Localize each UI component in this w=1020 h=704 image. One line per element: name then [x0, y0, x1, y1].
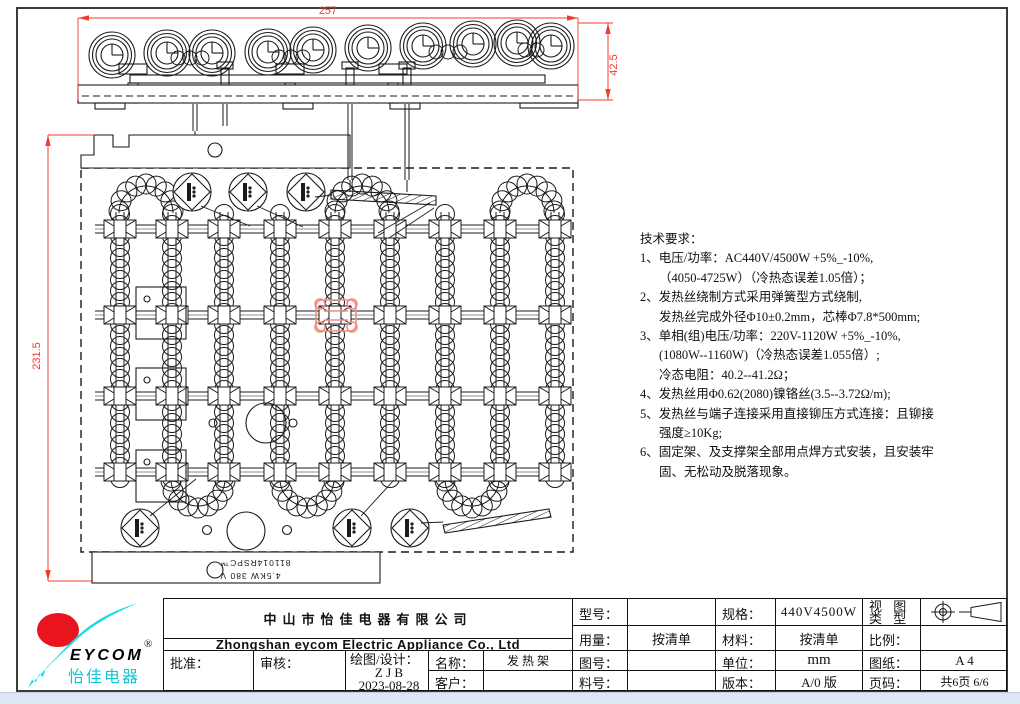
material-label: 材料：	[716, 626, 776, 651]
tech-note-line: 固、无松动及脱落现象。	[640, 463, 1018, 482]
tech-note-line: 6、固定架、及支撑架全部用点焊方式安装，且安装牢	[640, 443, 1018, 462]
drawing-no-value	[628, 651, 716, 671]
svg-text:42.5: 42.5	[608, 54, 620, 75]
tech-note-line: 5、发热丝与端子连接采用直接铆压方式连接：且铆接	[640, 405, 1018, 424]
tech-note-line: 冷态电阻：40.2--41.2Ω；	[640, 366, 1018, 385]
view-type-label: 视 图 类 型	[863, 599, 921, 626]
approve-field: 批准：	[164, 651, 254, 692]
projection-symbol-cell	[921, 599, 1008, 626]
material-value: 按清单	[776, 626, 863, 651]
tech-note-line: 2、发热丝绕制方式采用弹簧型方式绕制,	[640, 288, 1018, 307]
svg-text:257: 257	[319, 5, 337, 17]
drawing-sheet: 811014RSPC™ 4.5KW 380 V 257 42.5	[0, 0, 1020, 704]
scale-label: 比例：	[863, 626, 921, 651]
drawing-no-label: 图号：	[573, 651, 628, 671]
title-block: 中山市怡佳电器有限公司 Zhongshan eycom Electric App…	[163, 598, 1007, 691]
usage-value: 按清单	[628, 626, 716, 651]
first-angle-projection-icon	[923, 599, 1007, 625]
version-label: 版本：	[716, 671, 776, 692]
paper-value: A 4	[921, 651, 1008, 671]
unit-label: 单位：	[716, 651, 776, 671]
logo-brand-cn-text: 怡佳电器	[68, 668, 140, 686]
tech-note-line: (1080W--1160W)（冷热态误差1.055倍）;	[640, 346, 1018, 365]
part-no-value	[628, 671, 716, 692]
customer-value	[484, 671, 573, 692]
version-value: A/0 版	[776, 671, 863, 692]
technical-requirements: 技术要求： 1、电压/功率：AC440V/4500W +5%_-10%, （40…	[640, 230, 1018, 482]
review-field: 审核：	[254, 651, 346, 692]
model-label: 型号：	[573, 599, 628, 626]
logo-brand-text: EYCOM	[70, 647, 144, 664]
tech-note-line: 强度≥10Kg;	[640, 424, 1018, 443]
tech-note-line: 发热丝完成外径Φ10±0.2mm，芯棒Φ7.8*500mm;	[640, 308, 1018, 327]
tech-note-line: （4050-4725W）（冷热态误差1.05倍）；	[640, 269, 1018, 288]
customer-label: 客户：	[429, 671, 484, 692]
window-bottom-strip	[0, 692, 1020, 704]
tech-note-line: 1、电压/功率：AC440V/4500W +5%_-10%,	[640, 249, 1018, 268]
tech-note-line: 3、单相(组)电压/功率：220V-1120W +5%_-10%,	[640, 327, 1018, 346]
spec-value: 440V4500W	[776, 599, 863, 626]
svg-text:231.5: 231.5	[31, 342, 43, 370]
tech-note-line: 4、发热丝用Φ0.62(2080)镍铬丝(3.5--3.72Ω/m);	[640, 385, 1018, 404]
svg-text:4.5KW 380 V: 4.5KW 380 V	[219, 571, 280, 581]
company-name-cn: 中山市怡佳电器有限公司	[164, 599, 573, 639]
page-no-value: 共6页 6/6	[921, 671, 1008, 692]
company-name-en: Zhongshan eycom Electric Appliance Co., …	[164, 639, 573, 651]
name-value: 发 热 架	[484, 651, 573, 671]
svg-text:811014RSPC™: 811014RSPC™	[220, 558, 291, 568]
scale-value	[921, 626, 1008, 651]
spec-label: 规格：	[716, 599, 776, 626]
plan-view	[81, 135, 573, 583]
model-value	[628, 599, 716, 626]
paper-label: 图纸：	[863, 651, 921, 671]
usage-label: 用量：	[573, 626, 628, 651]
view-type-line2: 类 型	[869, 613, 920, 625]
tech-note-line: 技术要求：	[640, 230, 1018, 249]
designer-date: 2023-08-28	[350, 679, 428, 692]
name-label: 名称：	[429, 651, 484, 671]
part-no-label: 料号：	[573, 671, 628, 692]
registered-mark: ®	[144, 638, 152, 650]
page-no-label: 页码：	[863, 671, 921, 692]
unit-value: mm	[776, 651, 863, 671]
company-logo: EYCOM 怡佳电器	[20, 600, 162, 692]
designer-field: 绘图/设计： Z J B 2023-08-28	[346, 651, 429, 692]
